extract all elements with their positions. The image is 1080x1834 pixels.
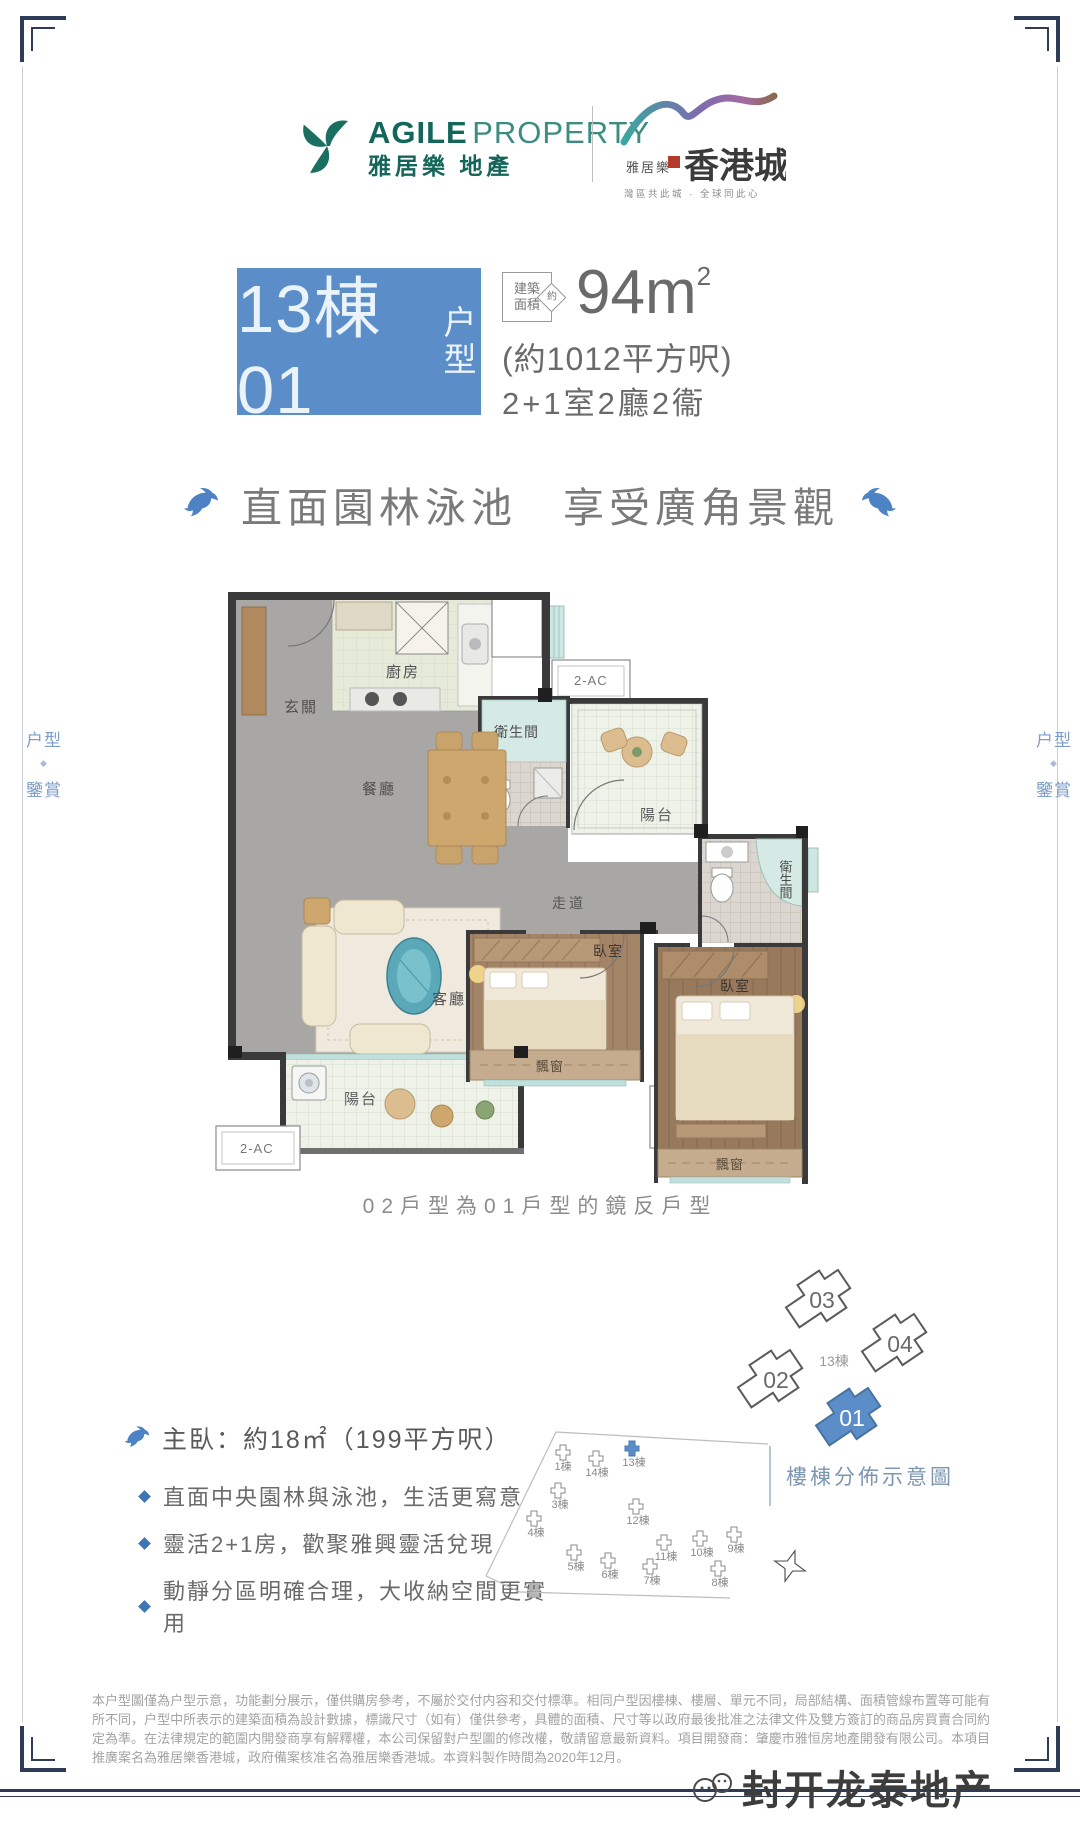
slogan-row: 直面園林泳池 享受廣角景觀 bbox=[0, 474, 1080, 534]
compass-icon bbox=[770, 1546, 810, 1586]
agile-logo-text: AGILE PROPERTY 雅居樂 地產 bbox=[368, 116, 650, 179]
floorplan-drawing: 玄關 廚房 2-AC 陽台 bbox=[200, 572, 880, 1197]
seal-icon bbox=[668, 156, 680, 168]
slogan-text: 直面園林泳池 享受廣角景觀 bbox=[241, 474, 839, 534]
siteplan-building-label: 3棟 bbox=[551, 1497, 568, 1511]
agile-name-en-bold: AGILE bbox=[368, 115, 468, 150]
corner-ornament-top-left bbox=[20, 16, 76, 72]
room-label-bath-2: 衛生間 bbox=[778, 860, 793, 900]
area-row: 建築 面積 約 94m2 bbox=[502, 262, 711, 324]
side-label-text: 户型 bbox=[26, 726, 62, 751]
side-label-text: 鑒賞 bbox=[1036, 776, 1072, 801]
cluster-building-label: 13棟 bbox=[819, 1353, 849, 1369]
room-label-balcony-bottom: 陽台 bbox=[344, 1091, 378, 1108]
area-sqft: (約1012平方呎) bbox=[502, 334, 733, 380]
unit-label-02: 02 bbox=[763, 1367, 789, 1393]
corner-ornament-bottom-right bbox=[1004, 1716, 1060, 1772]
siteplan-building-label: 1棟 bbox=[554, 1459, 571, 1473]
dolphin-icon bbox=[859, 486, 899, 522]
room-label-balcony-top: 陽台 bbox=[640, 807, 674, 824]
hk-logo-big: 香港城 bbox=[684, 147, 786, 186]
siteplan-building-label: 11棟 bbox=[655, 1549, 677, 1563]
side-label-text: 鑒賞 bbox=[26, 776, 62, 801]
dolphin-icon bbox=[181, 486, 221, 522]
siteplan-building-label: 12棟 bbox=[626, 1513, 649, 1527]
siteplan-building-label: 6棟 bbox=[601, 1567, 618, 1581]
gfa-badge: 建築 面積 約 bbox=[502, 272, 552, 322]
ac-label: 2-AC bbox=[574, 673, 608, 688]
hk-logo-tagline: 灣區共此城 · 全球同此心 bbox=[624, 188, 760, 200]
feature-text: 靈活2+1房，歡聚雅興靈活兌現 bbox=[163, 1527, 494, 1559]
agency-watermark: 封开龙泰地产 bbox=[690, 1758, 994, 1816]
room-label-kitchen: 廚房 bbox=[386, 663, 420, 681]
siteplan-building-label: 9棟 bbox=[727, 1541, 744, 1555]
unit-label-03: 03 bbox=[809, 1287, 835, 1313]
bullet-diamond-icon bbox=[138, 1537, 151, 1550]
side-label-right: 户型 ◆ 鑒賞 bbox=[1036, 726, 1072, 801]
siteplan-building-label: 4棟 bbox=[527, 1525, 544, 1539]
siteplan-building-label: 5棟 bbox=[567, 1559, 584, 1573]
hongkong-city-logo: 雅居樂 香港城 灣區共此城 · 全球同此心 bbox=[616, 84, 786, 204]
frame-line-left bbox=[22, 66, 23, 1722]
room-label-corridor: 走道 bbox=[552, 895, 586, 911]
hk-logo-small: 雅居樂 bbox=[626, 160, 671, 175]
layout-spec: 2+1室2廳2衞 bbox=[502, 378, 706, 423]
siteplan-building-label: 14棟 bbox=[585, 1465, 608, 1479]
unit-title-box: 13棟01 户型 bbox=[237, 268, 481, 415]
approx-diamond: 約 bbox=[537, 283, 567, 313]
floorplan-caption: 02戶型為01戶型的鏡反戶型 bbox=[200, 1190, 880, 1220]
unit-title-main: 13棟01 bbox=[237, 255, 425, 429]
corner-ornament-top-right bbox=[1004, 16, 1060, 72]
feature-headline: 主臥：約18㎡（199平方呎） bbox=[162, 1420, 512, 1456]
poster-page: 户型 ◆ 鑒賞 户型 ◆ 鑒賞 AGILE PROPERTY 雅居樂 地產 雅居 bbox=[0, 0, 1080, 1834]
side-label-text: 户型 bbox=[1036, 726, 1072, 751]
siteplan-building-label: 7棟 bbox=[643, 1573, 660, 1587]
room-label-bath-1: 衛生間 bbox=[494, 724, 539, 740]
swoosh-mark bbox=[624, 96, 774, 142]
room-label-living: 客廳 bbox=[432, 990, 466, 1008]
bullet-diamond-icon bbox=[138, 1490, 151, 1503]
unit-label-04: 04 bbox=[887, 1331, 913, 1357]
side-label-left: 户型 ◆ 鑒賞 bbox=[26, 726, 62, 801]
room-label-bedroom-2: 臥室 bbox=[720, 978, 750, 994]
area-value: 94m2 bbox=[576, 262, 711, 324]
ac-label: 2-AC bbox=[240, 1141, 274, 1156]
agile-logo-icon bbox=[294, 110, 360, 180]
ac-platform-top: 2-AC bbox=[552, 660, 630, 702]
siteplan-building-label: 13棟 bbox=[622, 1455, 645, 1469]
room-label-bay-2: 飄窗 bbox=[716, 1157, 744, 1172]
siteplan-title: 樓棟分佈示意圖 bbox=[786, 1466, 954, 1489]
siteplan-diagram: 樓棟分佈示意圖 1棟 14棟 13棟 3棟 4棟 12棟 11棟 10棟 9棟 … bbox=[468, 1418, 1008, 1623]
siteplan-building-label: 8棟 bbox=[711, 1575, 728, 1589]
mascot-icon bbox=[690, 1766, 736, 1808]
room-label-dining: 餐廳 bbox=[362, 780, 396, 798]
unit-title-sub: 户型 bbox=[433, 305, 481, 379]
frame-line-right bbox=[1057, 66, 1058, 1722]
siteplan-building-label: 10棟 bbox=[690, 1545, 713, 1559]
disclaimer-text: 本户型圖僅為户型示意，功能劃分展示，僅供購房參考，不屬於交付内容和交付標準。相同… bbox=[92, 1692, 990, 1767]
agile-name-zh: 雅居樂 地產 bbox=[368, 154, 650, 179]
logo-divider bbox=[592, 106, 593, 182]
room-label-bay-1: 飄窗 bbox=[536, 1059, 564, 1074]
corner-ornament-bottom-left bbox=[20, 1716, 76, 1772]
ac-platform-bottom-left: 2-AC bbox=[216, 1126, 300, 1170]
diamond-mark-icon: ◆ bbox=[1050, 758, 1058, 769]
dolphin-icon bbox=[122, 1425, 152, 1451]
room-label-foyer: 玄關 bbox=[284, 699, 318, 716]
gfa-badge-line2: 面積 bbox=[514, 297, 540, 313]
bullet-diamond-icon bbox=[138, 1600, 151, 1613]
diamond-mark-icon: ◆ bbox=[40, 758, 48, 769]
gfa-badge-line1: 建築 bbox=[514, 281, 540, 297]
watermark-text: 封开龙泰地产 bbox=[742, 1758, 994, 1816]
